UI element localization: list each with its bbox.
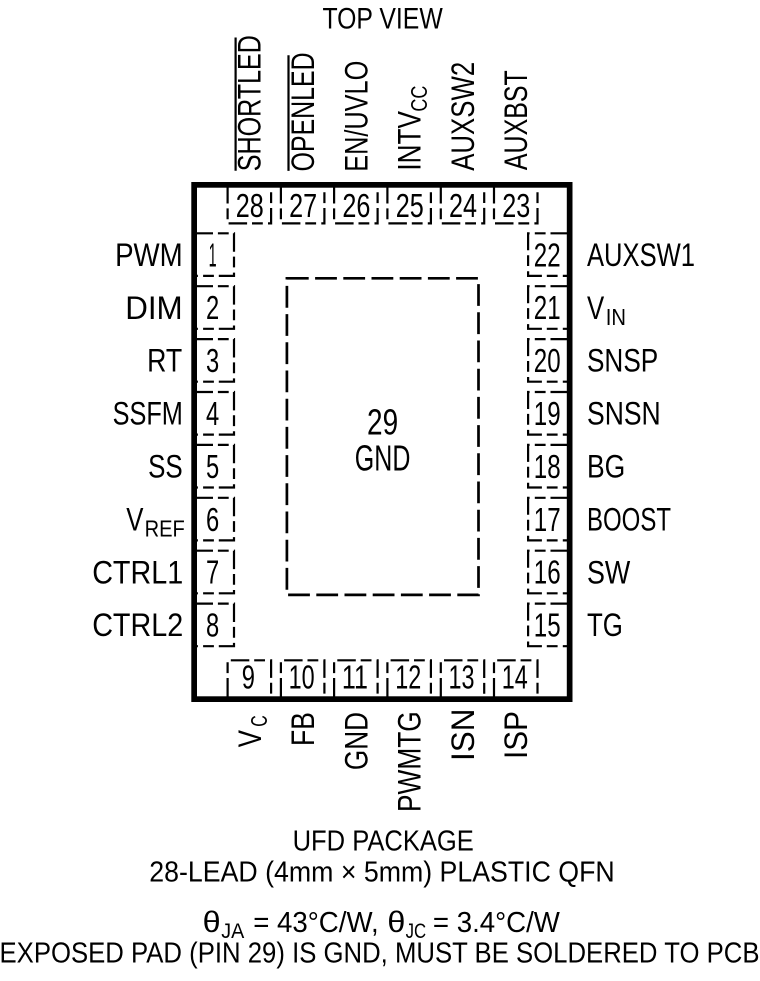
svg-text:SHORTLED: SHORTLED xyxy=(232,35,268,171)
svg-text:AUXSW1: AUXSW1 xyxy=(587,237,695,273)
svg-text:14: 14 xyxy=(502,660,528,697)
svg-text:BG: BG xyxy=(587,449,625,485)
svg-text:= 3.4°C/W: = 3.4°C/W xyxy=(433,907,560,939)
svg-text:V: V xyxy=(587,290,605,326)
svg-text:5: 5 xyxy=(206,449,219,486)
svg-text:10: 10 xyxy=(289,660,315,697)
svg-text:V: V xyxy=(232,730,268,748)
svg-text:24: 24 xyxy=(449,188,477,225)
svg-text:27: 27 xyxy=(289,188,317,225)
svg-text:FB: FB xyxy=(285,712,321,746)
svg-text:15: 15 xyxy=(534,608,561,645)
svg-text:20: 20 xyxy=(534,343,561,380)
svg-text:7: 7 xyxy=(206,555,219,592)
svg-text:V: V xyxy=(126,501,144,537)
svg-text:18: 18 xyxy=(534,449,561,486)
svg-text:26: 26 xyxy=(342,188,370,225)
svg-text:INTV: INTV xyxy=(392,111,428,171)
svg-text:GND: GND xyxy=(338,712,374,770)
svg-text:SSFM: SSFM xyxy=(113,396,183,432)
svg-text:22: 22 xyxy=(534,237,561,274)
svg-text:ISN: ISN xyxy=(445,709,481,761)
svg-text:19: 19 xyxy=(534,396,561,433)
svg-text:SNSP: SNSP xyxy=(587,343,658,379)
svg-text:28: 28 xyxy=(236,188,264,225)
svg-text:PWMTG: PWMTG xyxy=(392,711,428,812)
svg-text:21: 21 xyxy=(534,290,561,327)
svg-text:28-LEAD (4mm × 5mm) PLASTIC QF: 28-LEAD (4mm × 5mm) PLASTIC QFN xyxy=(149,857,614,889)
svg-text:DIM: DIM xyxy=(125,290,183,326)
svg-text:C: C xyxy=(246,715,272,727)
svg-text:11: 11 xyxy=(342,660,368,697)
svg-text:ISP: ISP xyxy=(498,711,534,759)
svg-text:25: 25 xyxy=(396,188,424,225)
svg-text:UFD PACKAGE: UFD PACKAGE xyxy=(293,825,474,857)
svg-text:GND: GND xyxy=(355,437,411,478)
svg-text:3: 3 xyxy=(206,343,219,380)
svg-text:BOOST: BOOST xyxy=(587,501,671,537)
svg-text:SNSN: SNSN xyxy=(587,396,661,432)
svg-text:16: 16 xyxy=(534,555,561,592)
svg-text:9: 9 xyxy=(242,660,255,697)
svg-text:12: 12 xyxy=(395,660,421,697)
svg-text:SW: SW xyxy=(587,554,631,590)
svg-text:2: 2 xyxy=(206,290,219,327)
svg-text:θ: θ xyxy=(203,906,221,939)
svg-text:CTRL1: CTRL1 xyxy=(92,554,183,590)
svg-text:RT: RT xyxy=(147,343,182,379)
svg-text:SS: SS xyxy=(148,449,183,485)
svg-text:IN: IN xyxy=(606,304,626,330)
svg-text:AUXSW2: AUXSW2 xyxy=(445,62,481,171)
svg-text:1: 1 xyxy=(209,237,217,274)
svg-text:OPENLED: OPENLED xyxy=(285,52,321,171)
svg-text:13: 13 xyxy=(449,660,475,697)
svg-text:6: 6 xyxy=(206,502,219,539)
svg-text:PWM: PWM xyxy=(115,237,183,273)
svg-text:EXPOSED PAD (PIN 29) IS GND, M: EXPOSED PAD (PIN 29) IS GND, MUST BE SOL… xyxy=(0,937,760,969)
svg-text:EN/UVLO: EN/UVLO xyxy=(338,61,374,172)
svg-text:REF: REF xyxy=(145,516,185,542)
svg-text:4: 4 xyxy=(206,396,219,433)
svg-text:CTRL2: CTRL2 xyxy=(92,607,183,643)
svg-text:TG: TG xyxy=(587,607,623,643)
svg-text:= 43°C/W,: = 43°C/W, xyxy=(253,907,379,939)
svg-text:23: 23 xyxy=(502,188,530,225)
svg-text:AUXBST: AUXBST xyxy=(498,70,534,170)
svg-text:8: 8 xyxy=(206,608,219,645)
svg-text:θ: θ xyxy=(387,906,405,939)
svg-text:TOP VIEW: TOP VIEW xyxy=(322,2,443,35)
svg-text:CC: CC xyxy=(406,86,432,112)
svg-text:17: 17 xyxy=(534,502,561,539)
